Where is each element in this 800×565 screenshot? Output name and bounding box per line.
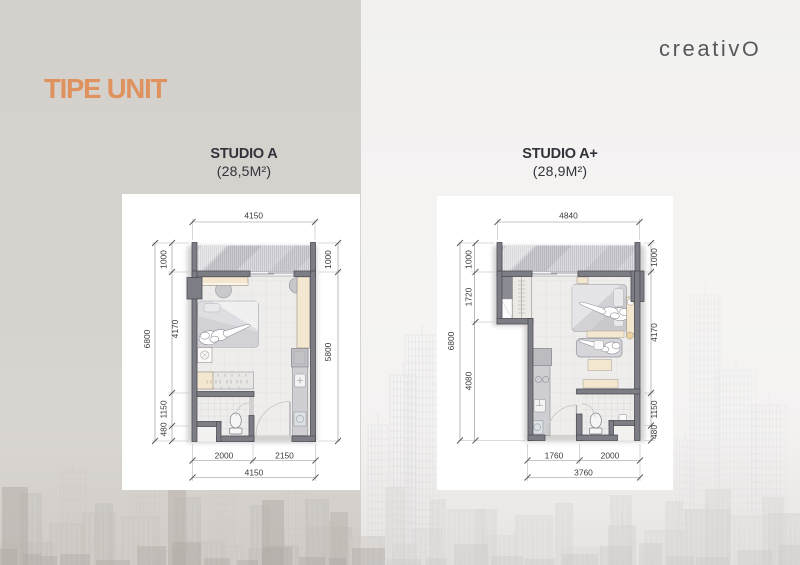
svg-text:480: 480 <box>649 425 659 439</box>
svg-text:3760: 3760 <box>574 468 593 478</box>
svg-text:480: 480 <box>159 422 169 436</box>
svg-text:6800: 6800 <box>142 329 152 348</box>
svg-text:4150: 4150 <box>245 468 264 478</box>
svg-text:4170: 4170 <box>170 319 180 338</box>
svg-text:6800: 6800 <box>446 331 456 350</box>
svg-text:4080: 4080 <box>464 371 474 390</box>
svg-text:1150: 1150 <box>159 400 169 418</box>
svg-text:1150: 1150 <box>649 400 659 418</box>
svg-text:2000: 2000 <box>215 451 234 461</box>
svg-text:4150: 4150 <box>244 211 263 221</box>
svg-text:5800: 5800 <box>323 342 333 361</box>
svg-text:1000: 1000 <box>323 250 333 269</box>
svg-text:1760: 1760 <box>545 451 564 461</box>
svg-text:2150: 2150 <box>275 451 294 461</box>
svg-text:4170: 4170 <box>649 323 659 342</box>
svg-text:1000: 1000 <box>464 250 474 269</box>
svg-text:1000: 1000 <box>159 250 169 269</box>
svg-text:2000: 2000 <box>601 451 620 461</box>
svg-text:4840: 4840 <box>559 211 578 221</box>
svg-text:1000: 1000 <box>649 248 659 267</box>
svg-text:1720: 1720 <box>464 287 474 306</box>
